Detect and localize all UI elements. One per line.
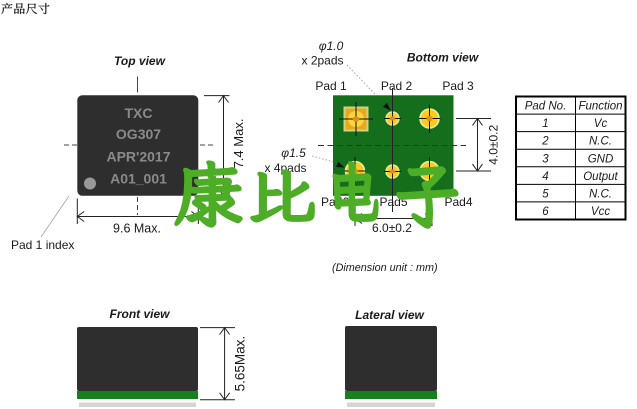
svg-text:(Dimension unit : mm): (Dimension unit : mm) — [332, 262, 438, 274]
svg-text:Pad 2: Pad 2 — [381, 79, 413, 93]
svg-text:OG307: OG307 — [116, 126, 161, 142]
svg-text:4.0±0.2: 4.0±0.2 — [487, 125, 501, 165]
svg-text:6: 6 — [542, 206, 549, 218]
svg-text:9.6 Max.: 9.6 Max. — [113, 222, 161, 236]
svg-text:4: 4 — [542, 171, 548, 183]
svg-text:Pad 3: Pad 3 — [442, 79, 474, 93]
svg-text:Vcc: Vcc — [591, 206, 610, 218]
svg-text:6.0±0.2: 6.0±0.2 — [372, 221, 412, 235]
svg-text:Bottom view: Bottom view — [407, 51, 479, 65]
svg-text:3: 3 — [542, 153, 549, 165]
svg-text:N.C.: N.C. — [589, 188, 612, 200]
svg-text:A01_001: A01_001 — [110, 171, 167, 187]
svg-text:N.C.: N.C. — [589, 136, 612, 148]
svg-text:Vc: Vc — [594, 118, 608, 130]
svg-text:GND: GND — [588, 153, 614, 165]
svg-text:Lateral view: Lateral view — [355, 308, 424, 322]
svg-text:Pad 1: Pad 1 — [315, 79, 347, 93]
svg-text:5: 5 — [542, 188, 549, 200]
svg-text:TXC: TXC — [125, 105, 153, 121]
svg-text:2: 2 — [541, 136, 549, 148]
svg-text:Front view: Front view — [109, 307, 170, 321]
svg-text:Pad No.: Pad No. — [525, 101, 567, 113]
svg-text:Top view: Top view — [114, 54, 166, 68]
svg-text:1: 1 — [542, 118, 548, 130]
svg-text:Pad 1 index: Pad 1 index — [11, 238, 74, 252]
svg-text:φ1.5: φ1.5 — [281, 146, 306, 160]
svg-text:Output: Output — [583, 171, 618, 183]
svg-text:Pad4: Pad4 — [444, 195, 472, 209]
svg-text:Function: Function — [578, 101, 622, 113]
svg-text:7.4 Max.: 7.4 Max. — [231, 119, 246, 169]
svg-text:φ1.0: φ1.0 — [319, 39, 344, 53]
svg-text:x 2pads: x 2pads — [302, 54, 344, 68]
svg-text:5.65Max.: 5.65Max. — [233, 336, 248, 392]
svg-text:APR'2017: APR'2017 — [106, 149, 170, 165]
